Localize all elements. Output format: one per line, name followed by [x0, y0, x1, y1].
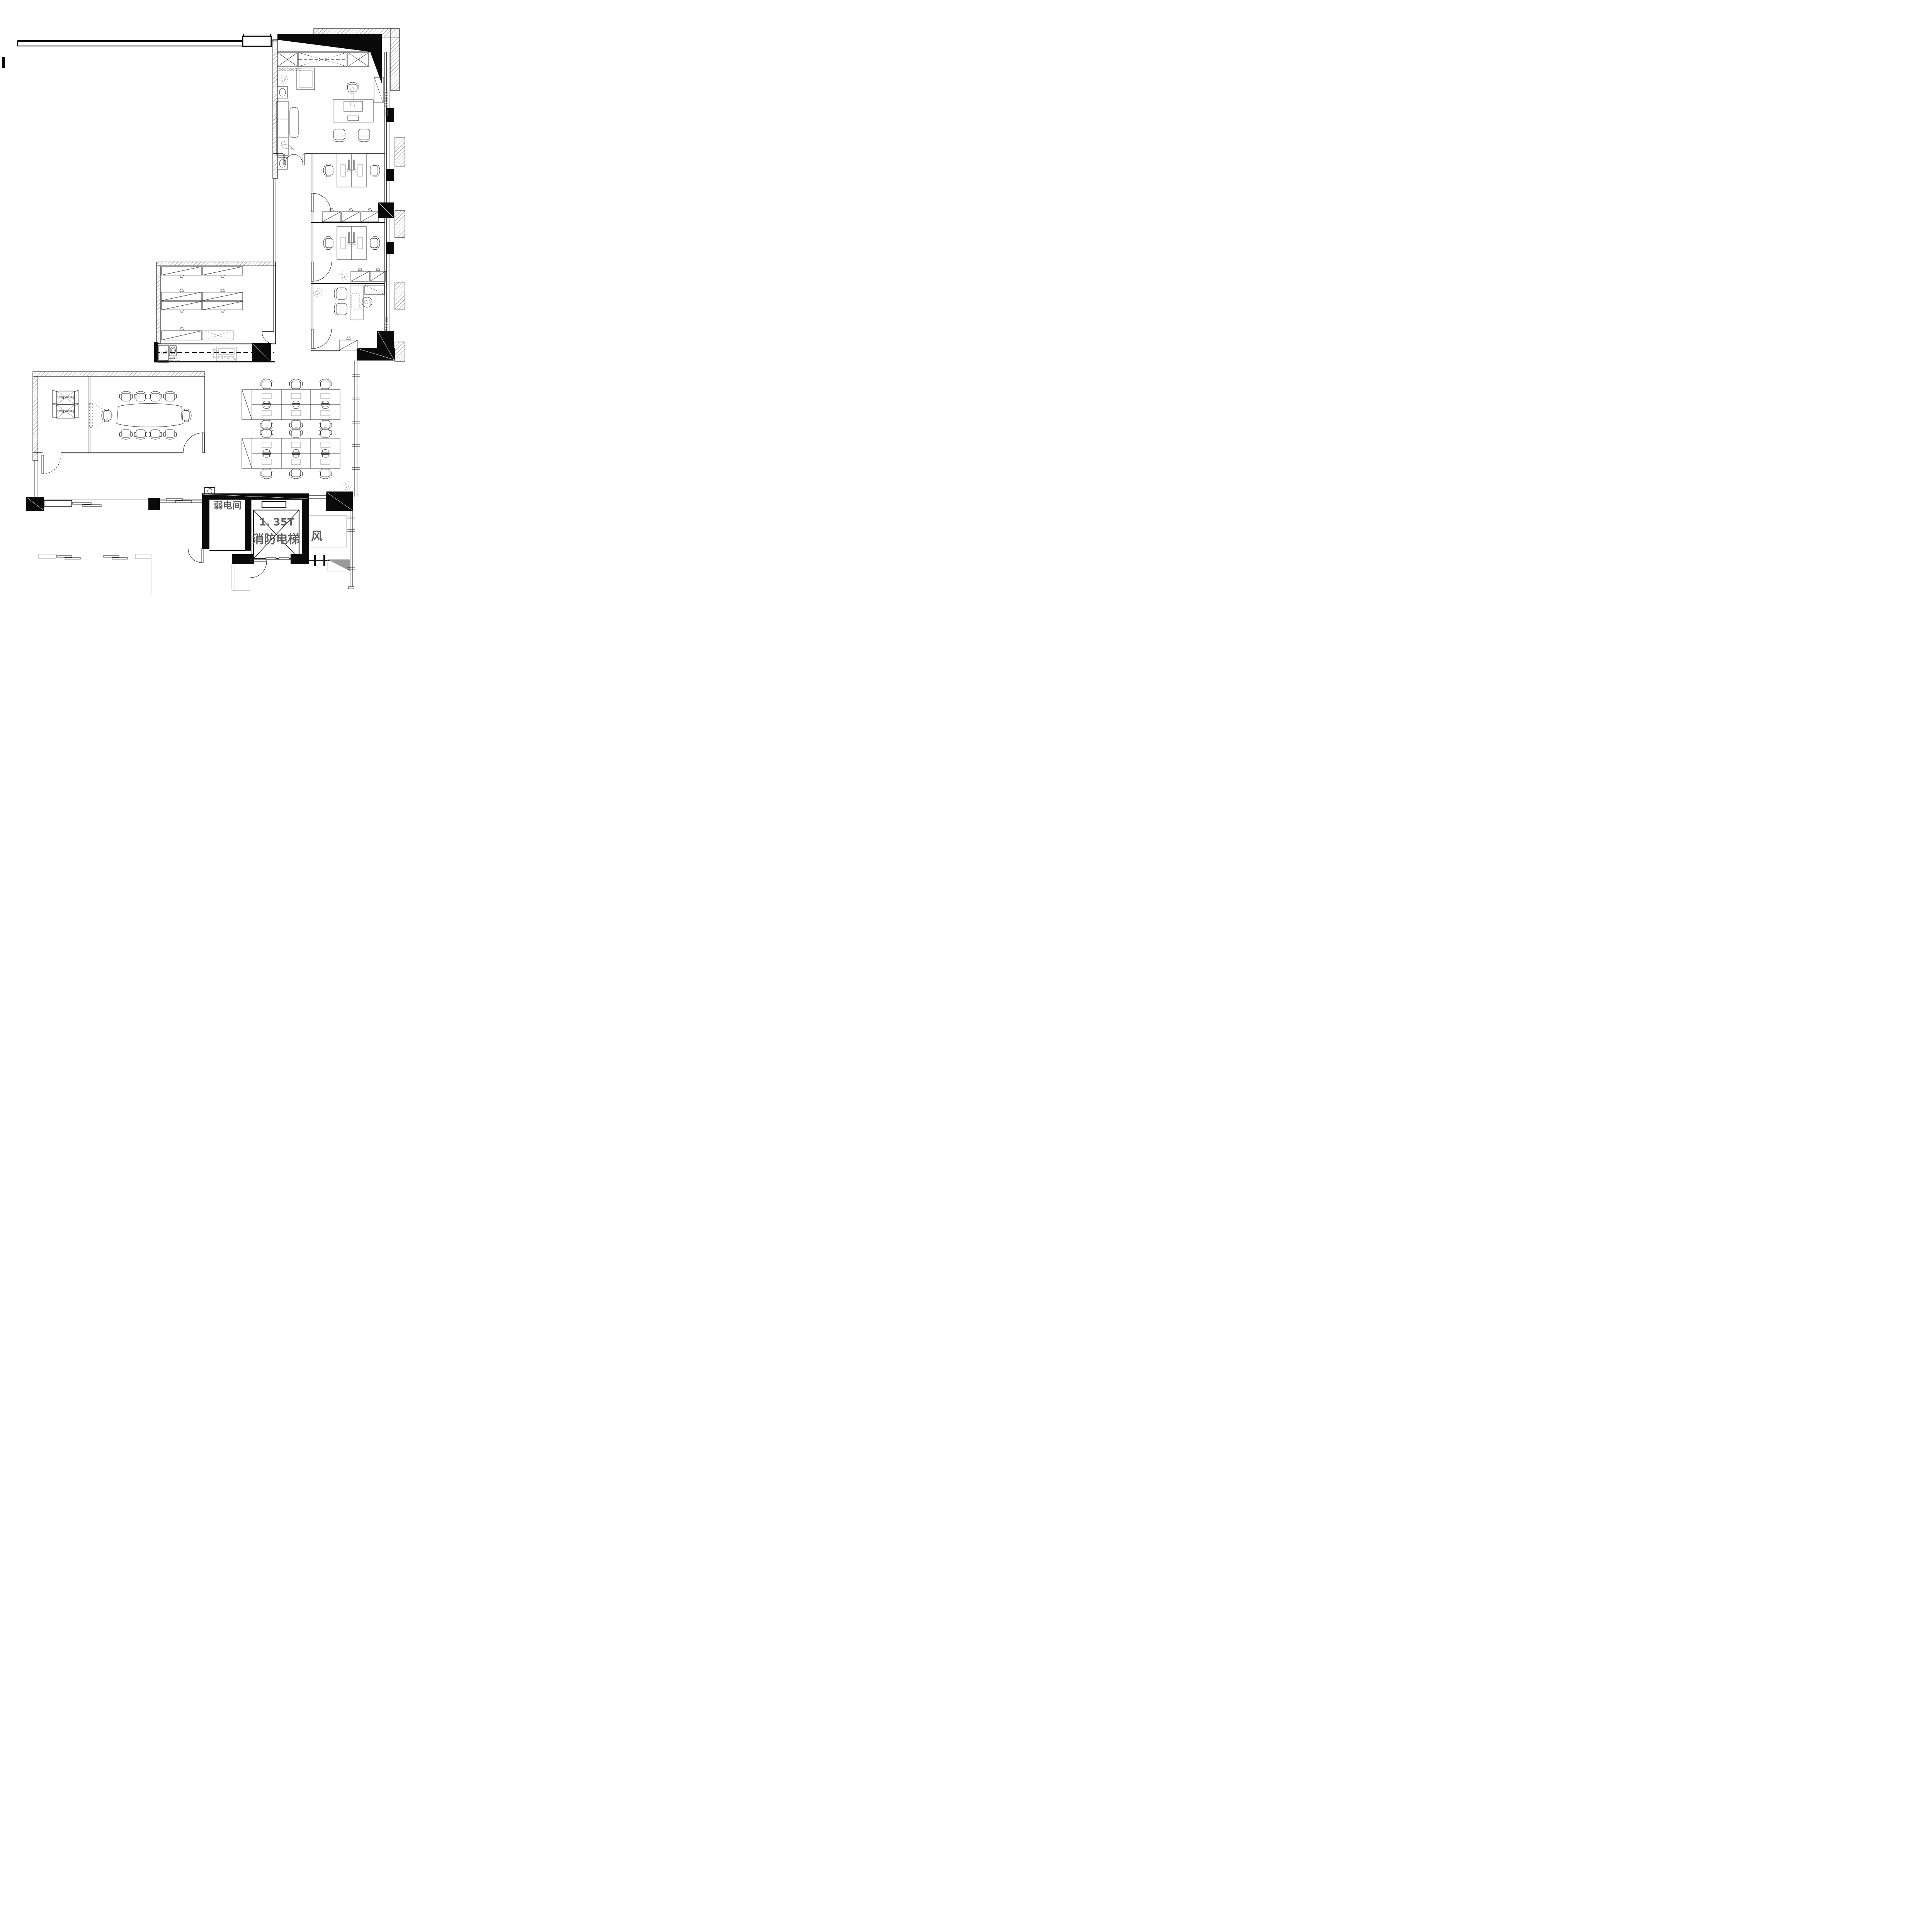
exterior-ledge-5: [395, 342, 405, 361]
guest-chair: [333, 129, 345, 142]
plant: [339, 272, 347, 280]
task-chair: [319, 469, 332, 479]
window-wall-east: [352, 361, 360, 497]
conference-chair: [149, 391, 162, 401]
entrance-lintel: [243, 36, 271, 46]
task-chair: [260, 420, 273, 430]
wall-black-wedge: [252, 343, 271, 362]
wall-tv: [90, 403, 113, 427]
glass-door: [262, 332, 274, 344]
task-chair: [370, 164, 380, 177]
task-chair: [323, 237, 333, 250]
executive-chair: [346, 82, 359, 92]
desk-pair: [337, 226, 366, 260]
door: [188, 549, 203, 563]
door: [311, 262, 332, 281]
column-sw: [26, 497, 44, 511]
conference-chair: [120, 391, 133, 401]
south-wall-of-core: [309, 555, 350, 571]
door: [311, 193, 331, 212]
cabinet-row: [351, 268, 386, 281]
water-dispenser-label-2: DISPENSER: [166, 360, 180, 363]
server-rack-1: Server Rack: [53, 390, 79, 404]
office-4: [311, 284, 395, 361]
guest-chair: [358, 129, 370, 142]
conference-chair: [120, 430, 133, 439]
task-chair: [319, 428, 332, 437]
cabinet-xbox: [365, 285, 385, 294]
fridge-label: REF.: [160, 350, 167, 354]
wall-hatched-top: [156, 262, 276, 266]
open-office: [242, 361, 360, 497]
column: [148, 498, 160, 510]
lounge-chair: [334, 303, 347, 315]
server-rack-label: Server Rack: [57, 396, 75, 399]
shaft-triangle: [328, 560, 350, 571]
conference-chair: [134, 391, 147, 401]
fire-elevator-shaft: 1. 35T 消防电梯: [251, 500, 302, 560]
task-chair: [323, 164, 333, 177]
sofa: [277, 101, 298, 155]
floor-plan: REF. WATER DISPENSER Server Rack Server …: [0, 0, 434, 614]
cabinet-row: [162, 267, 243, 340]
wall-hatched-left: [33, 376, 38, 461]
task-chair: [290, 379, 303, 389]
exterior-shell: [2, 29, 405, 361]
wall-segment: [44, 501, 72, 506]
corridor: [274, 179, 275, 262]
task-chair: [319, 420, 332, 430]
right-curtain-wall: [378, 52, 394, 359]
column: [386, 242, 394, 254]
cabinet-row: [277, 53, 369, 66]
fire-elevator-label: 消防电梯: [252, 532, 300, 546]
pantry: REF. WATER DISPENSER: [154, 342, 276, 363]
printer-copier: [213, 347, 236, 361]
conference-chair: [164, 430, 177, 439]
task-chair: [260, 428, 273, 437]
water-dispenser-label-1: WATER: [169, 357, 178, 360]
column-ne: [326, 492, 353, 511]
workstation-cluster-1: [242, 379, 340, 430]
air-shaft: 风: [310, 515, 346, 548]
wall-hatched-top: [33, 372, 205, 376]
conference-chair: [164, 391, 177, 401]
exterior-ledge-2: [395, 137, 405, 166]
sliding-door: [73, 502, 101, 507]
plant: [343, 481, 351, 490]
task-chair: [290, 420, 303, 430]
conference-table: [117, 404, 183, 427]
executive-office: [273, 34, 385, 179]
wall-black-bottom-left: [232, 554, 254, 564]
person-at-desk: [349, 88, 355, 107]
desk-with-person: [350, 286, 372, 320]
exterior-ledge-3: [395, 211, 405, 238]
wall-stub: [2, 57, 5, 68]
elevator-door: [262, 502, 286, 508]
server-rack-label: Server Rack: [57, 410, 75, 413]
conference-chair: [149, 430, 162, 439]
door: [311, 329, 332, 349]
water-dispenser: WATER DISPENSER: [166, 345, 180, 363]
weak-current-room-label: 弱电间: [214, 500, 241, 511]
executive-desk: [333, 100, 373, 122]
server-room: Server Rack Server Rack: [33, 372, 205, 474]
task-chair: [370, 237, 380, 250]
wall-black-left: [202, 500, 209, 549]
conference-room: [33, 376, 205, 453]
conference-chair: [182, 409, 191, 422]
lounge-chair: [334, 288, 347, 299]
wall-hatched-left: [156, 266, 160, 343]
door: [183, 433, 204, 453]
door-dashed: [42, 455, 61, 474]
desk-pair: [337, 154, 366, 187]
task-chair: [290, 428, 303, 437]
cabinet-row: [339, 337, 358, 350]
elevator-core: 弱电间 1. 35T 消防电梯 风: [188, 488, 355, 590]
plant: [279, 75, 287, 83]
bottom-exterior-wall: [26, 461, 202, 595]
exterior-ledge-right-top: [390, 29, 400, 90]
storage-room: [156, 262, 276, 344]
wall-black-mid: [245, 500, 251, 551]
server-rack-2: Server Rack: [53, 404, 79, 418]
terrace-wall: [39, 554, 151, 595]
sliding-door: [166, 498, 192, 503]
air-shaft-label: 风: [311, 530, 323, 543]
task-chair: [319, 379, 332, 389]
column: [386, 169, 394, 181]
window-wall-southeast: [347, 511, 355, 589]
task-chair: [260, 379, 273, 389]
office-2: [311, 154, 385, 223]
task-chair: [260, 469, 273, 479]
wall-black-corner: [370, 52, 382, 83]
exterior-ledge-4: [395, 282, 405, 310]
conference-chair: [134, 430, 147, 439]
elevator-load-label: 1. 35T: [259, 517, 294, 528]
task-chair: [290, 469, 303, 479]
plant: [313, 288, 322, 297]
column: [386, 108, 394, 122]
wall-black-top: [277, 34, 382, 52]
console-cabinet: [297, 68, 315, 90]
curtain-symbol: [279, 68, 301, 71]
conference-chair: [102, 409, 111, 422]
office-3: [311, 223, 386, 284]
weak-current-room: 弱电间: [188, 500, 245, 563]
double-door: [283, 154, 304, 165]
chaise: [290, 107, 298, 138]
workstation-cluster-2: [242, 428, 340, 479]
